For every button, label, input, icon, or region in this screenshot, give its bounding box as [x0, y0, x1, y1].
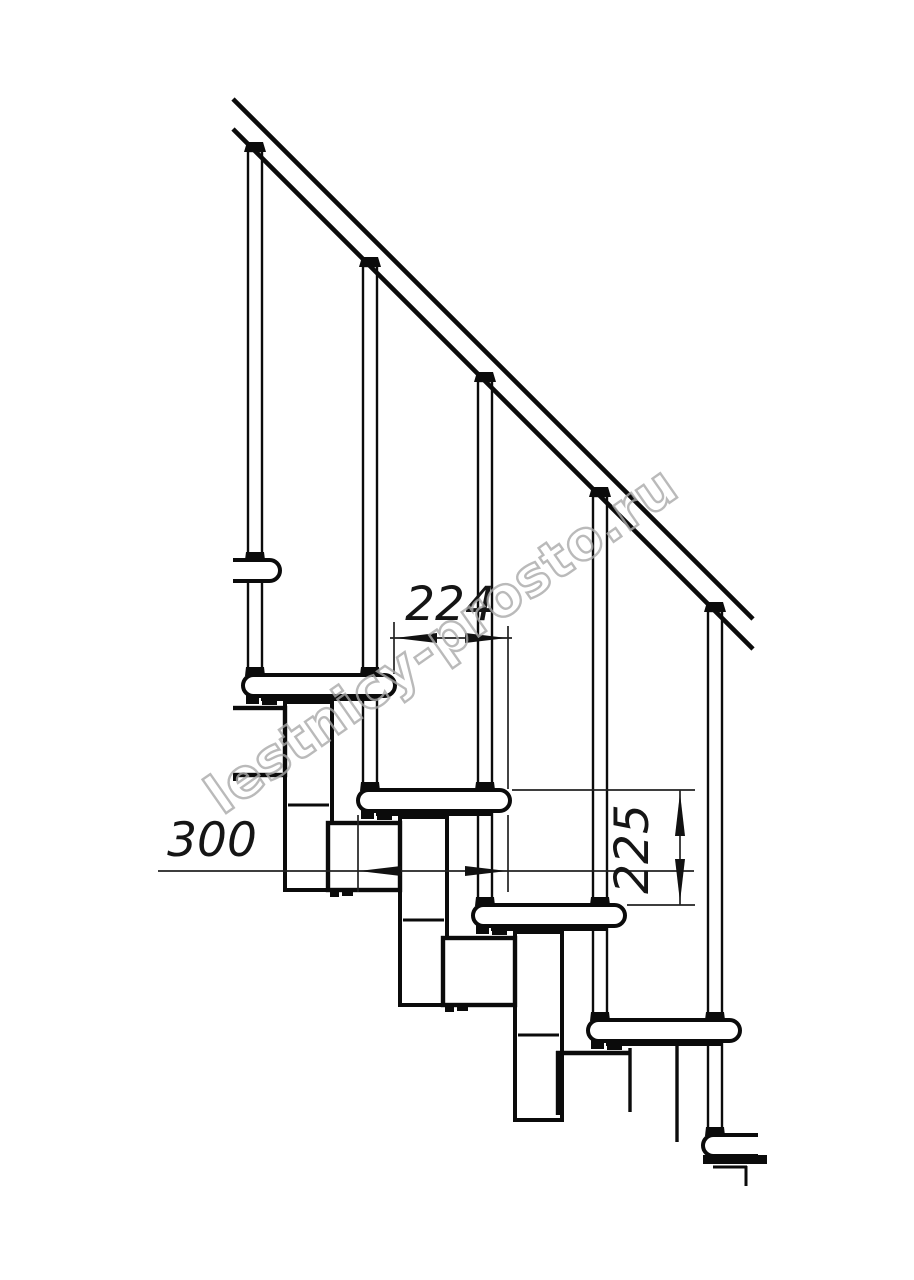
staircase-drawing-page: 224 300 225 lestnicy-prosto.ru	[0, 0, 914, 1280]
dimension-label-tread-depth: 300	[167, 813, 257, 868]
watermark-text: lestnicy-prosto.ru	[194, 453, 689, 826]
tread	[703, 1135, 855, 1156]
baluster	[708, 611, 722, 1135]
tread	[128, 560, 280, 581]
tread	[358, 790, 510, 811]
baluster	[593, 496, 607, 1020]
baluster	[248, 151, 262, 675]
staircase-side-view-drawing: 224 300 225 lestnicy-prosto.ru	[0, 0, 914, 1280]
dimension-label-rise: 225	[605, 804, 660, 894]
tread	[588, 1020, 740, 1041]
tread	[473, 905, 625, 926]
